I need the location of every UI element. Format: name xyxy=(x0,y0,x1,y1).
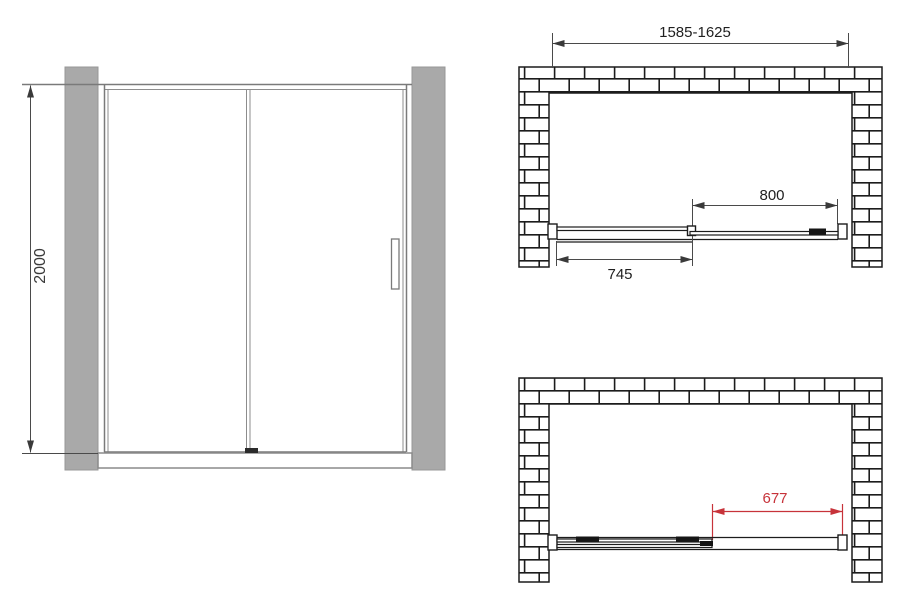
bottom-door-guide xyxy=(245,448,258,453)
slider-handle xyxy=(700,541,713,546)
fixed-panel xyxy=(557,227,692,231)
roller-carriage-right xyxy=(676,537,699,542)
arrowhead-right xyxy=(826,202,838,209)
fixed-width-dimension: 745 xyxy=(557,236,693,283)
plan-open-door-assembly xyxy=(548,535,847,550)
plan-open-brick-wall xyxy=(519,378,882,582)
fixed-width-dimension-label: 745 xyxy=(607,266,632,283)
plan-view-closed: 1585-1625 800 xyxy=(519,24,882,283)
plan-closed-brick-wall xyxy=(519,67,882,267)
shower-door-drawing: 2000 1585-1625 800 xyxy=(0,0,904,597)
arrowhead-left xyxy=(713,508,725,515)
arrowhead-up xyxy=(27,86,34,98)
front-wall-right xyxy=(412,67,445,470)
front-view: 2000 xyxy=(22,67,445,470)
arrowhead-left xyxy=(553,40,565,47)
arrowhead-right xyxy=(831,508,843,515)
wall-profile-right xyxy=(838,535,847,550)
slider-width-dimension-label: 800 xyxy=(759,187,784,204)
roller-carriage-left xyxy=(576,537,599,542)
slider-handle xyxy=(809,229,826,235)
arrowhead-right xyxy=(837,40,849,47)
front-wall-left xyxy=(65,67,98,470)
arrowhead-down xyxy=(27,441,34,453)
wall-profile-left xyxy=(548,224,557,239)
height-dimension-label: 2000 xyxy=(32,248,49,284)
arrowhead-left xyxy=(693,202,705,209)
slider-width-dimension: 800 xyxy=(693,187,838,227)
wall-profile-left xyxy=(548,535,557,550)
plan-closed-door-assembly xyxy=(548,224,847,242)
clear-opening-dimension-label: 677 xyxy=(762,490,787,507)
shower-tray xyxy=(98,453,412,468)
wall-profile-right xyxy=(838,224,847,239)
sliding-panel-open xyxy=(557,545,712,548)
plan-view-open: 677 xyxy=(519,378,882,582)
width-range-dimension: 1585-1625 xyxy=(553,24,849,68)
arrowhead-left xyxy=(557,256,569,263)
arrowhead-right xyxy=(681,256,693,263)
clear-opening-dimension: 677 xyxy=(713,490,843,540)
technical-drawing-page: 2000 1585-1625 800 xyxy=(0,0,904,597)
door-handle xyxy=(392,239,400,289)
width-range-dimension-label: 1585-1625 xyxy=(659,24,731,41)
